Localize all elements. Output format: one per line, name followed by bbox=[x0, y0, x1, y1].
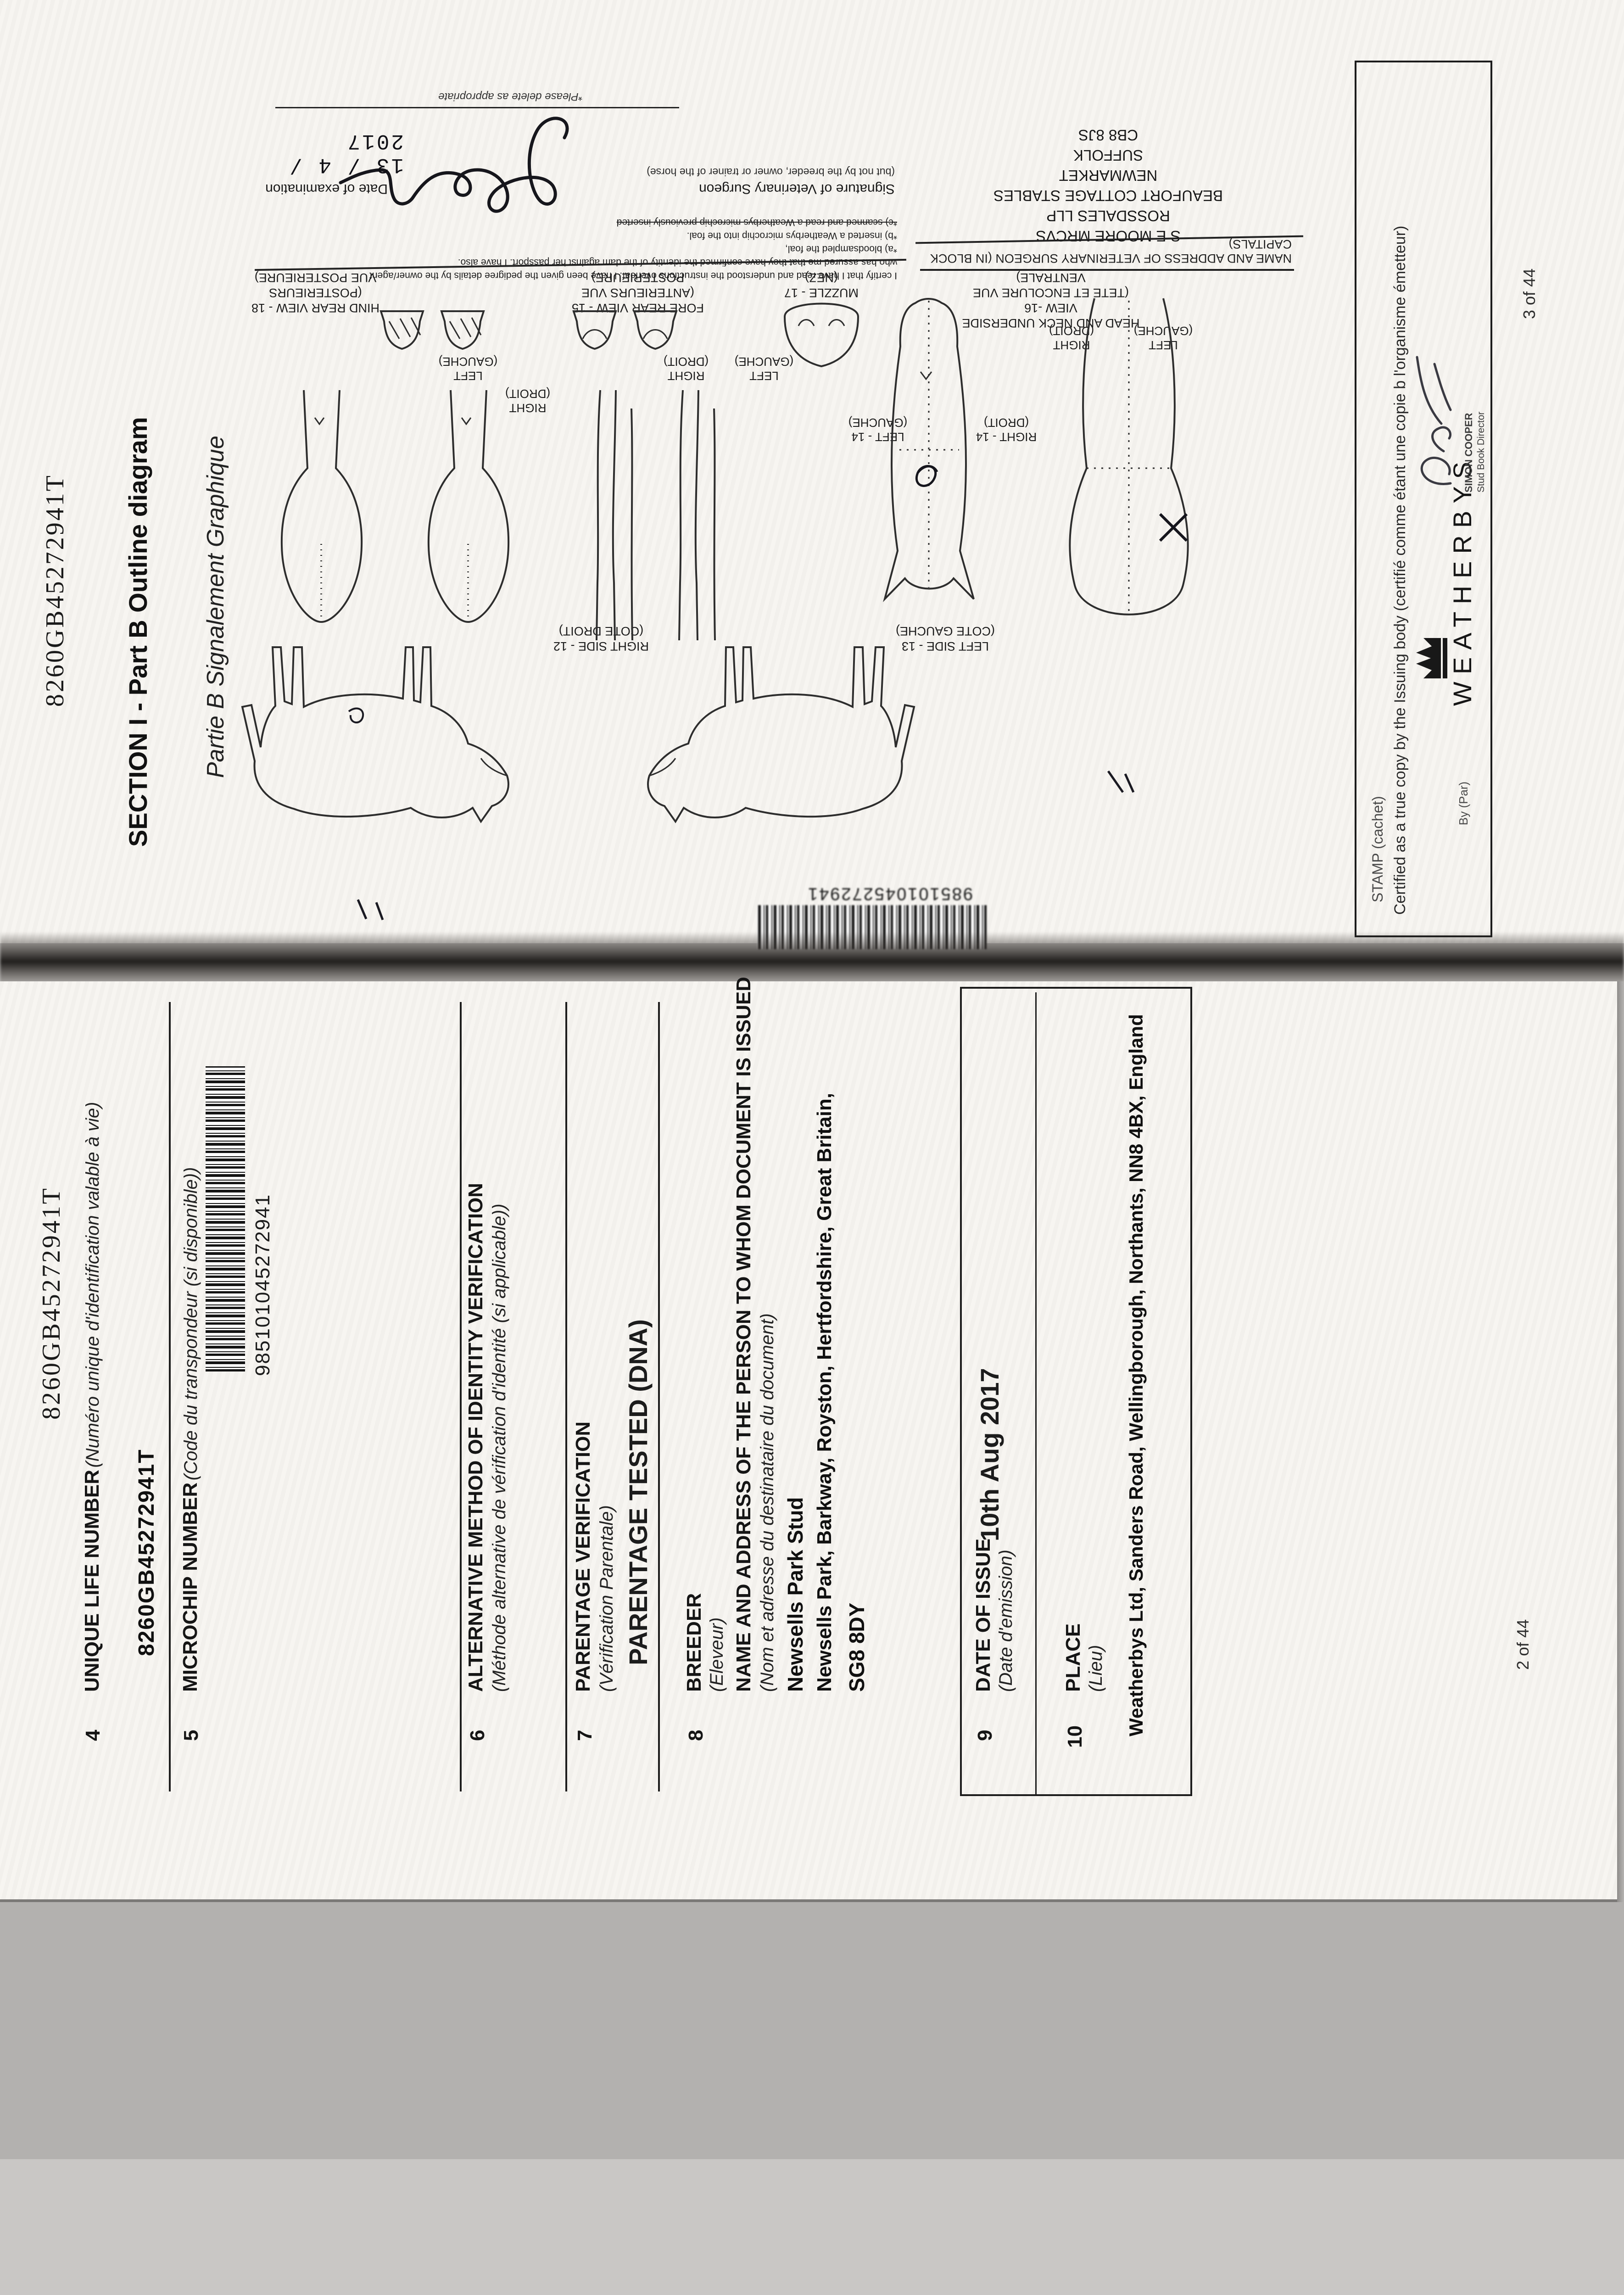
field-7-value: PARENTAGE TESTED (DNA) bbox=[623, 1319, 653, 1665]
field-10-label-fr: (Lieu) bbox=[1086, 1645, 1106, 1692]
stamp-signatory-name: SIMON COOPER bbox=[1463, 413, 1475, 493]
delete-as-appropriate-note: *Please delete as appropriate bbox=[438, 90, 583, 103]
field-4-value: 8260GB45272941T bbox=[134, 1449, 159, 1656]
field-6-number: 6 bbox=[466, 1730, 489, 1741]
field-4-label-row: UNIQUE LIFE NUMBER (Numéro unique d'iden… bbox=[81, 1102, 104, 1692]
field-6-label-fr: (Méthode alternative de vérification d'i… bbox=[489, 1203, 510, 1692]
vet-address-line: BEAUFORT COTTAGE STABLES bbox=[925, 185, 1292, 206]
field-5-value: 985101045272941 bbox=[251, 1194, 274, 1376]
page-edge-shadow bbox=[1617, 981, 1624, 1902]
vet-address-line: CB8 8JS bbox=[925, 125, 1292, 145]
stamp-box: STAMP (cachet) Certified as a true copy … bbox=[1355, 61, 1492, 937]
head-neck-underside-outline bbox=[1070, 298, 1188, 615]
weatherbys-crown-icon bbox=[1411, 634, 1449, 682]
field-10-label: PLACE bbox=[1062, 1623, 1085, 1692]
field-8-value-line1: Newsells Park Stud bbox=[783, 1497, 808, 1692]
vet-address: S E MOORE MRCVS ROSSDALES LLP BEAUFORT C… bbox=[925, 125, 1292, 246]
booklet-spine-shadow bbox=[0, 932, 1624, 986]
field-9-label: DATE OF ISSUE bbox=[972, 1539, 995, 1692]
page3-page-number: 3 of 44 bbox=[1520, 269, 1539, 319]
field-8-label2: NAME AND ADDRESS OF THE PERSON TO WHOM D… bbox=[732, 977, 755, 1692]
field-9-label-fr: (Date d'emission) bbox=[996, 1550, 1016, 1692]
vet-address-line: ROSSDALES LLP bbox=[925, 206, 1292, 226]
top-page-barcode-number: 985101045272941 bbox=[807, 884, 973, 903]
field-6-label: ALTERNATIVE METHOD OF IDENTITY VERIFICAT… bbox=[464, 1183, 487, 1692]
field-8-label-fr: (Eleveur) bbox=[707, 1618, 727, 1692]
field-8-value-line3: SG8 8DY bbox=[844, 1603, 869, 1692]
field-4-label: UNIQUE LIFE NUMBER bbox=[81, 1470, 103, 1692]
field-8-label: BREEDER bbox=[683, 1593, 706, 1692]
field-5-number: 5 bbox=[180, 1730, 203, 1741]
stamp-signatory-title: Stud Book Director bbox=[1476, 412, 1487, 493]
head-front-outline bbox=[885, 299, 974, 599]
field-5-label: MICROCHIP NUMBER bbox=[179, 1483, 201, 1692]
page3-unique-life-number: 8260GB45272941T bbox=[40, 474, 70, 707]
field-7-number: 7 bbox=[574, 1730, 597, 1741]
certification-signature-block: NAME AND ADDRESS OF VETERINARY SURGEON (… bbox=[257, 37, 1299, 294]
scanned-horse-passport: 8260GB45272941T SECTION I - Part B Outli… bbox=[0, 0, 1624, 2295]
page2-unique-life-number-header: 8260GB45272941T bbox=[37, 1187, 66, 1420]
field-5-label-row: MICROCHIP NUMBER (Code du transpondeur (… bbox=[179, 1167, 202, 1692]
hand-ink-marks bbox=[1108, 771, 1133, 792]
microchip-barcode bbox=[206, 1066, 245, 1371]
stud-book-director-signature bbox=[1407, 350, 1467, 502]
field-8-value-line2: Newsells Park, Barkway, Royston, Hertfor… bbox=[813, 1093, 836, 1692]
stamp-by-label: By (Par) bbox=[1457, 782, 1471, 825]
signature-of-vet-label: Signature of Veterinary Surgeon bbox=[699, 181, 895, 196]
page-3-outline-diagram: 8260GB45272941T SECTION I - Part B Outli… bbox=[0, 0, 1624, 943]
vet-address-line: NEWMARKET bbox=[925, 165, 1292, 185]
section-title: SECTION I - Part B Outline diagram bbox=[123, 417, 153, 847]
certification-item-a: *a) bloodsampled the foal, bbox=[305, 242, 897, 256]
muzzle-outline bbox=[785, 304, 858, 367]
page-2-details: 8260GB45272941T 4 UNIQUE LIFE NUMBER (Nu… bbox=[0, 981, 1617, 1899]
signature-note: (but not by the breeder, owner or traine… bbox=[647, 166, 895, 178]
field-10-value: Weatherbys Ltd, Sanders Road, Wellingbor… bbox=[1125, 1014, 1147, 1736]
scanner-background bbox=[0, 1902, 1624, 2159]
field-8-label2-fr: (Nom et adresse du destinataire du docum… bbox=[757, 1313, 778, 1692]
date-of-examination-value: 13 / 4 / 2017 bbox=[257, 129, 404, 177]
field-9-value: 10th Aug 2017 bbox=[975, 1368, 1005, 1541]
vet-address-line: S E MOORE MRCVS bbox=[925, 226, 1292, 246]
stamp-label: STAMP (cachet) bbox=[1369, 796, 1386, 902]
field-7-label: PARENTAGE VERIFICATION bbox=[572, 1422, 595, 1692]
scanner-background-light bbox=[0, 2159, 1624, 2295]
field-8-number: 8 bbox=[685, 1730, 708, 1741]
page2-page-number: 2 of 44 bbox=[1513, 1619, 1533, 1670]
field-5-label-fr: (Code du transpondeur (si disponible)) bbox=[181, 1167, 201, 1481]
field-10-number: 10 bbox=[1064, 1725, 1087, 1748]
horse-outline-diagrams bbox=[184, 257, 1331, 946]
field-7-label-fr: (Vérification Parentale) bbox=[597, 1505, 617, 1692]
field-4-label-fr: (Numéro unique d'identification valable … bbox=[83, 1102, 103, 1468]
page-2-rotated-layer: 8260GB45272941T 4 UNIQUE LIFE NUMBER (Nu… bbox=[0, 981, 1618, 1904]
date-of-examination-label: Date of examination bbox=[265, 181, 388, 196]
field-9-number: 9 bbox=[974, 1730, 997, 1741]
field-4-number: 4 bbox=[82, 1730, 105, 1741]
vet-address-line: SUFFOLK bbox=[925, 145, 1292, 165]
